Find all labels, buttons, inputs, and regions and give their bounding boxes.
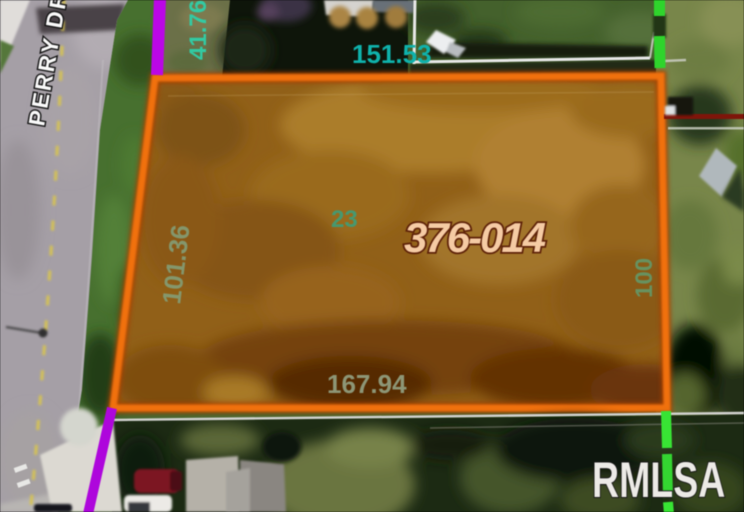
svg-text:RMLSA: RMLSA <box>592 453 725 508</box>
svg-text:23: 23 <box>331 206 358 233</box>
svg-text:151.53: 151.53 <box>352 39 432 69</box>
svg-text:167.94: 167.94 <box>327 369 407 399</box>
svg-text:376-014: 376-014 <box>404 214 546 261</box>
svg-text:41.76: 41.76 <box>185 0 212 60</box>
svg-text:100: 100 <box>631 258 658 298</box>
